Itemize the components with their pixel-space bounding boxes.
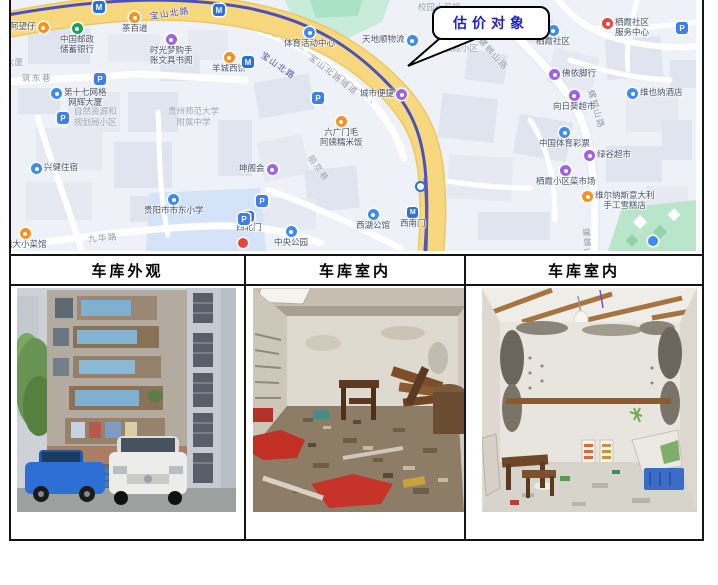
purple-poi-icon <box>569 90 580 101</box>
blue-poi-icon <box>286 226 297 237</box>
purple-poi-icon <box>267 164 278 175</box>
icon-dot <box>563 131 567 135</box>
map-poi: 阿望仔 <box>10 22 49 33</box>
header-garage-interior-2: 车库室内 <box>466 256 702 284</box>
road-label: 螺蛳山 <box>580 228 594 251</box>
orange-poi-icon <box>582 191 593 202</box>
area-label: 栖霞小区 <box>444 43 478 54</box>
icon-dot <box>588 154 592 158</box>
road-label: 螺蛳山路 <box>476 35 512 73</box>
area-label: 自然资源和 规划局小区 <box>74 106 117 127</box>
parking-icon: P <box>238 213 250 225</box>
table-border-right <box>702 0 704 541</box>
parking-icon: P <box>676 22 688 34</box>
blue-poi-icon <box>627 88 638 99</box>
poi-label: 茶百道 <box>122 24 148 34</box>
icon-dot <box>289 230 293 234</box>
blue-poi-icon <box>31 163 42 174</box>
metro-icon: M <box>93 1 105 13</box>
purple-poi-icon <box>396 89 407 100</box>
parking-icon: P <box>57 112 69 124</box>
map-poi: 体育活动中心 <box>284 27 335 49</box>
orange-poi-icon <box>38 22 49 33</box>
map-poi: 城市便捷 <box>360 89 407 100</box>
blue-poi-icon <box>648 236 658 246</box>
icon-dot <box>35 167 39 171</box>
icon-dot <box>75 27 79 31</box>
blue-poi-icon <box>559 127 570 138</box>
metro-poi-icon: M <box>407 207 418 218</box>
poi-label: 兴健住宿 <box>44 163 78 173</box>
poi-label: 天地顺物流 <box>362 35 405 45</box>
icon-dot <box>172 198 176 202</box>
map-poi: 西湖公馆 <box>356 209 390 231</box>
icon-dot <box>631 92 635 96</box>
map-poi: 栖霞社区 服务中心 <box>602 18 649 37</box>
poi-label: 时光梦购手 账文具书阁 <box>150 46 193 65</box>
blue-poi-icon <box>407 35 418 46</box>
orange-poi-icon <box>336 116 347 127</box>
poi-label: 中国邮政 储蓄银行 <box>60 35 94 54</box>
road-label: 宝山北路隧道 <box>306 51 361 97</box>
table-rule-1 <box>9 254 704 256</box>
header-garage-exterior: 车库外观 <box>11 256 244 284</box>
map-poi: 六广门毛 阿姨糯米饭 <box>320 116 363 147</box>
poi-label: 向日葵超市 <box>553 102 596 112</box>
map-poi: 佛依脚行 <box>549 69 596 80</box>
table-divider-1 <box>244 254 246 541</box>
blue-poi-icon <box>51 88 62 99</box>
orange-poi-icon <box>20 228 31 239</box>
map-poi: 羊城西饼 <box>212 52 246 74</box>
poi-label: 佛依脚行 <box>562 69 596 79</box>
map-poi: 向日葵超市 <box>553 90 596 112</box>
callout-bubble: 估价对象 <box>432 6 550 40</box>
map-poi: 维也纳酒店 <box>627 88 683 99</box>
poi-label: 绿谷超市 <box>597 150 631 160</box>
orange-poi-icon <box>129 12 140 23</box>
poi-label: 栖霞小区菜市场 <box>536 177 596 187</box>
icon-dot <box>55 92 59 96</box>
map-poi: 中国邮政 储蓄银行 <box>60 23 94 54</box>
poi-label: 阿望仔 <box>10 22 36 32</box>
map-poi: 第十七网格 网辉大厦 <box>51 88 107 107</box>
parking-icon: P <box>312 92 324 104</box>
road-label: 丽京巷 <box>305 153 332 184</box>
map-poi: 天地顺物流 <box>362 35 418 46</box>
poi-label: 羊城西饼 <box>212 64 246 74</box>
road-label: 宝山北路 <box>149 4 190 21</box>
photo-garage-interior-1 <box>253 288 464 512</box>
poi-label: 栖霞社区 服务中心 <box>615 18 649 37</box>
table-rule-2 <box>9 284 704 286</box>
purple-poi-icon <box>584 150 595 161</box>
poi-label: 中央公园 <box>274 238 308 248</box>
poi-label: 西南门 <box>400 219 426 229</box>
red-poi-icon <box>602 18 613 29</box>
table-border-left <box>9 0 11 541</box>
map-poi: 栖霞小区菜市场 <box>536 165 596 187</box>
icon-dot <box>270 168 274 172</box>
map-poi: 维尔纳斯意大利 手工雪糕店 <box>582 191 655 210</box>
icon-dot <box>169 38 173 42</box>
metro-station-icon <box>415 181 426 192</box>
icon-dot <box>606 22 610 26</box>
document-page: 宝山北路宝山北路宝山北路隧道螺蛳山路螺蛳山路螺蛳山丽京巷筑东巷九华路自然资源和 … <box>0 0 718 585</box>
icon-dot <box>410 39 414 43</box>
blue-poi-icon <box>304 27 315 38</box>
map-poi: 中央公园 <box>274 226 308 248</box>
poi-label: 城市便捷 <box>360 89 394 99</box>
icon-dot <box>564 169 568 173</box>
icon-dot <box>551 29 555 33</box>
map-poi: 中国体育彩票 <box>539 127 590 149</box>
road-label: 筑东巷 <box>22 72 52 84</box>
poi-label: 贵阳市市东小学 <box>144 206 204 216</box>
metro-icon: M <box>242 56 254 68</box>
poi-label: 维也纳酒店 <box>640 88 683 98</box>
icon-dot <box>553 73 557 77</box>
poi-label: 西湖公馆 <box>356 221 390 231</box>
map-poi: 电大小菜馆 <box>10 228 47 250</box>
icon-dot <box>227 56 231 60</box>
map-poi: 绿谷超市 <box>584 150 631 161</box>
map-poi: 贵阳市市东小学 <box>144 194 204 216</box>
poi-label: 中国体育彩票 <box>539 139 590 149</box>
red-poi-icon <box>238 238 248 248</box>
poi-label: 坤阁会 <box>239 164 265 174</box>
icon-dot <box>572 94 576 98</box>
callout-label: 估价对象 <box>453 13 529 33</box>
poi-label: 维尔纳斯意大利 手工雪糕店 <box>595 191 655 210</box>
map-poi: 坤阁会 <box>239 164 278 175</box>
map-poi: 时光梦购手 账文具书阁 <box>150 34 193 65</box>
poi-label: 电大小菜馆 <box>10 240 47 250</box>
header-garage-interior-1: 车库室内 <box>246 256 464 284</box>
icon-dot <box>371 213 375 217</box>
purple-poi-icon <box>560 165 571 176</box>
road-label: 宝山北路 <box>259 49 299 82</box>
area-label: 大厦 <box>10 57 23 68</box>
metro-icon: M <box>213 4 225 16</box>
poi-label: 六广门毛 阿姨糯米饭 <box>320 128 363 147</box>
photo-garage-exterior <box>17 288 236 512</box>
photo-garage-interior-2 <box>482 288 697 512</box>
icon-dot <box>41 26 45 30</box>
table-divider-2 <box>464 254 466 541</box>
map-poi: 兴健住宿 <box>31 163 78 174</box>
area-label: 贵州师范大学 附属中学 <box>168 106 219 127</box>
parking-icon: P <box>256 195 268 207</box>
poi-label: 第十七网格 网辉大厦 <box>64 88 107 107</box>
purple-poi-icon <box>166 34 177 45</box>
map-poi: M西南门 <box>400 207 426 229</box>
orange-poi-icon <box>224 52 235 63</box>
icon-dot <box>400 93 404 97</box>
map-poi: 茶百道 <box>122 12 148 34</box>
blue-poi-icon <box>368 209 379 220</box>
map-poi-layer: 宝山北路宝山北路宝山北路隧道螺蛳山路螺蛳山路螺蛳山丽京巷筑东巷九华路自然资源和 … <box>10 0 696 251</box>
icon-dot <box>23 232 27 236</box>
purple-poi-icon <box>549 69 560 80</box>
icon-dot <box>308 31 312 35</box>
road-label: 九华路 <box>87 230 118 245</box>
icon-dot <box>586 195 590 199</box>
icon-dot <box>133 16 137 20</box>
poi-label: 体育活动中心 <box>284 39 335 49</box>
green-poi-icon <box>72 23 83 34</box>
blue-poi-icon <box>168 194 179 205</box>
table-border-bottom <box>9 539 704 541</box>
icon-dot <box>339 120 343 124</box>
parking-icon: P <box>94 73 106 85</box>
map-panel: 宝山北路宝山北路宝山北路隧道螺蛳山路螺蛳山路螺蛳山丽京巷筑东巷九华路自然资源和 … <box>10 0 696 251</box>
